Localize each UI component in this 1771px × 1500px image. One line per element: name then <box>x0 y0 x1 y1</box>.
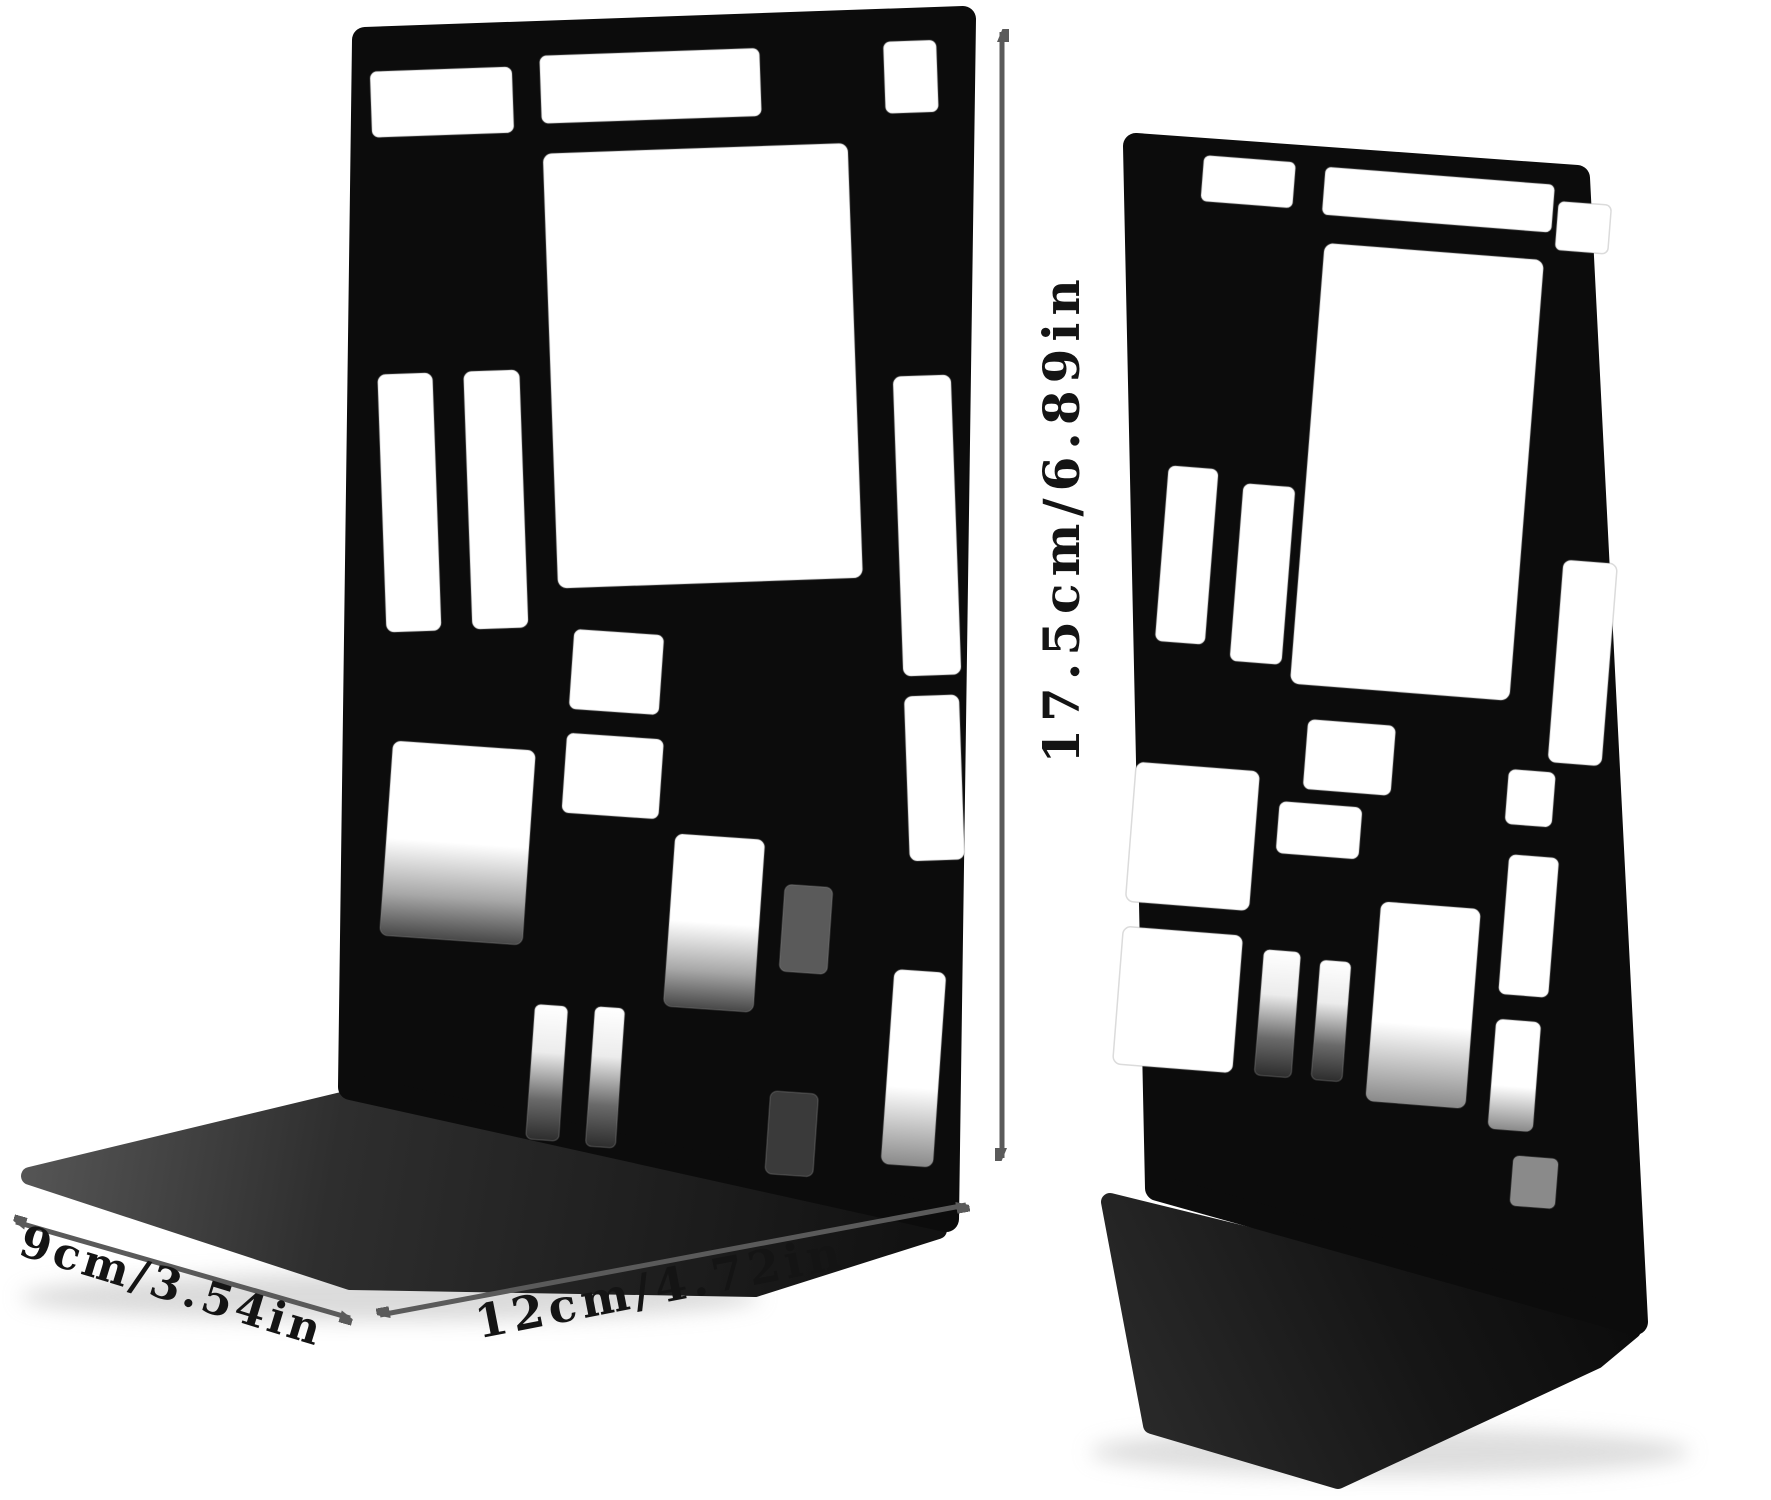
product-photo: 17.5cm/6.89in 12cm/4.72in 9cm/3.54in <box>0 0 1771 1500</box>
left-bookend <box>30 19 968 1288</box>
right-bookend <box>1104 146 1647 1480</box>
height-dimension-label: 17.5cm/6.89in <box>1032 218 1092 818</box>
bookends-illustration <box>0 0 1771 1500</box>
